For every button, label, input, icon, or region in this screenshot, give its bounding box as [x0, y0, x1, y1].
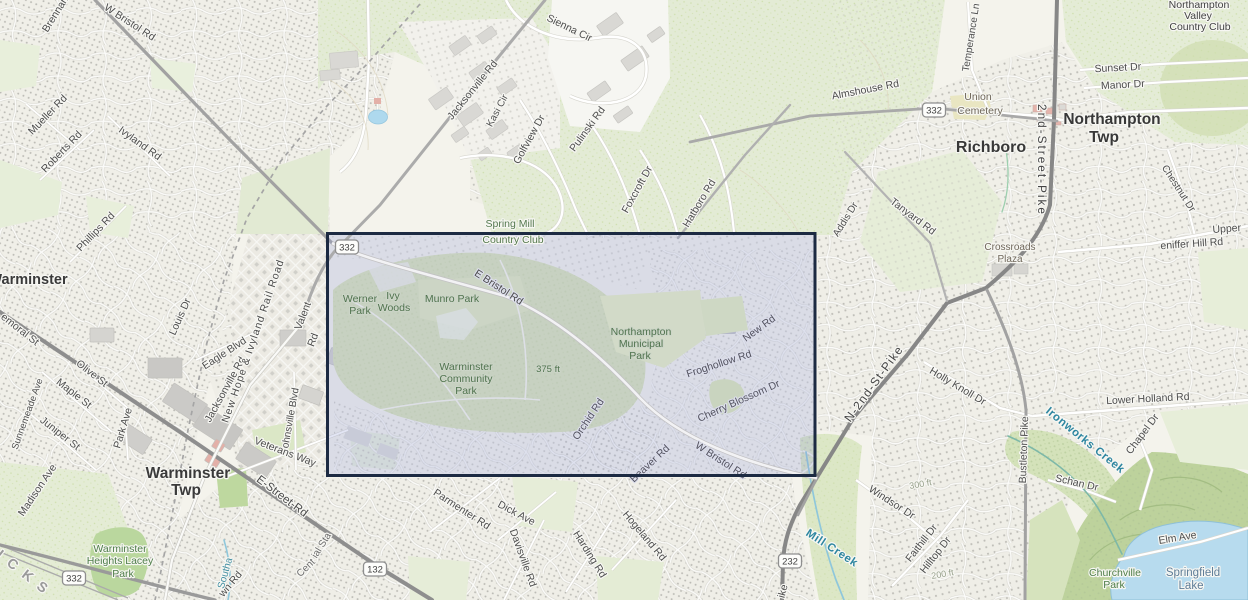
svg-text:332: 332 — [926, 105, 942, 116]
svg-text:Spring Mill: Spring Mill — [485, 218, 534, 230]
svg-text:332: 332 — [339, 242, 355, 253]
svg-text:Warminster: Warminster — [146, 465, 231, 482]
svg-text:Churchville: Churchville — [1089, 567, 1141, 579]
svg-text:Northampton: Northampton — [1063, 111, 1160, 128]
svg-text:Community: Community — [439, 373, 493, 385]
svg-text:Lake: Lake — [1179, 580, 1204, 592]
svg-text:Country Club: Country Club — [1169, 21, 1230, 33]
svg-text:Upper: Upper — [1212, 222, 1242, 236]
svg-text:Warminster: Warminster — [93, 543, 147, 555]
svg-text:Park: Park — [349, 305, 371, 317]
svg-text:332: 332 — [66, 573, 82, 584]
svg-text:Union: Union — [964, 91, 992, 103]
svg-text:132: 132 — [367, 564, 383, 575]
svg-text:Sunset Dr: Sunset Dr — [1094, 61, 1142, 75]
svg-text:Northampton: Northampton — [611, 326, 672, 338]
svg-text:Twp: Twp — [171, 482, 201, 499]
svg-text:Bustleton Pike: Bustleton Pike — [1017, 416, 1031, 484]
svg-text:375 ft: 375 ft — [536, 364, 560, 375]
svg-text:Springfield: Springfield — [1166, 567, 1220, 579]
svg-text:Crossroads: Crossroads — [984, 242, 1035, 253]
svg-text:Manor Dr: Manor Dr — [1101, 78, 1146, 92]
svg-text:Ivy: Ivy — [386, 290, 400, 302]
svg-text:Park: Park — [112, 568, 134, 580]
svg-text:Woods: Woods — [378, 302, 411, 314]
svg-text:Richboro: Richboro — [956, 139, 1026, 156]
svg-text:2nd-Street-Pike: 2nd-Street-Pike — [1035, 104, 1049, 216]
svg-text:Warminster: Warminster — [0, 272, 68, 288]
svg-text:Heights Lacey: Heights Lacey — [87, 555, 154, 567]
svg-text:Cemetery: Cemetery — [957, 105, 1003, 117]
svg-text:Werner: Werner — [343, 293, 378, 305]
svg-text:232: 232 — [782, 556, 798, 567]
svg-text:Municipal: Municipal — [619, 338, 663, 350]
svg-text:Park: Park — [1103, 579, 1125, 591]
svg-text:Twp: Twp — [1089, 129, 1119, 146]
svg-text:Plaza: Plaza — [997, 254, 1022, 265]
svg-text:Country Club: Country Club — [482, 234, 543, 246]
svg-text:Park: Park — [455, 385, 477, 397]
svg-text:Park: Park — [629, 350, 651, 362]
svg-text:Warminster: Warminster — [439, 361, 493, 373]
svg-text:Munro Park: Munro Park — [425, 293, 480, 305]
